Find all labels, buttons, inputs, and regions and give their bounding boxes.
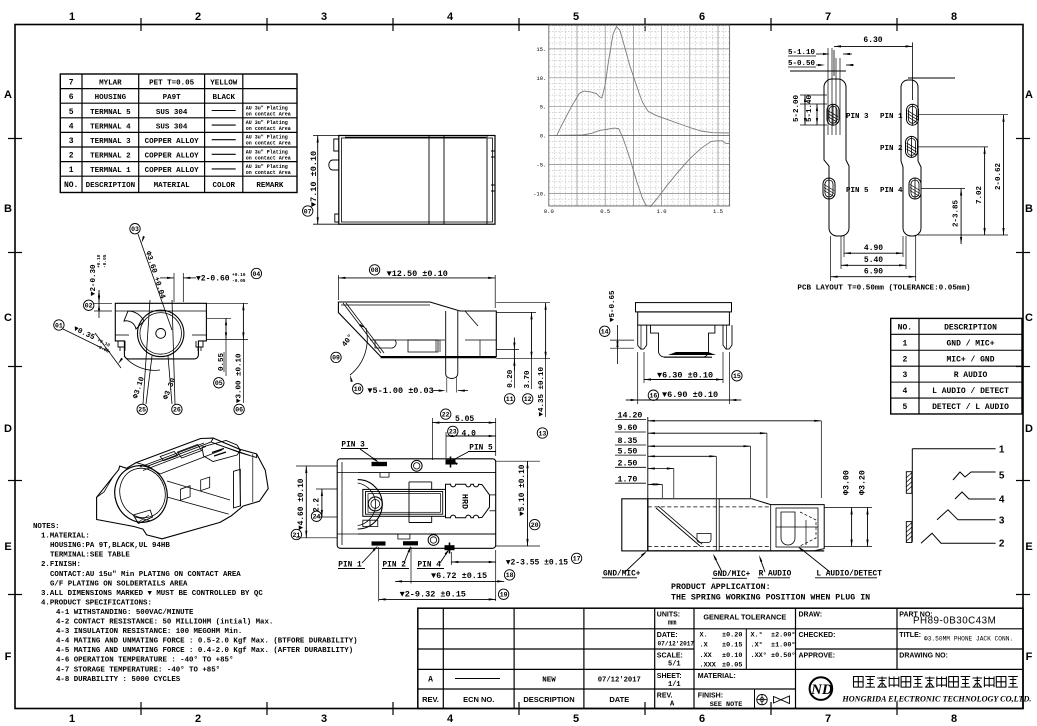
svg-text:UNITS:: UNITS: xyxy=(657,612,680,619)
svg-text:on contact Area: on contact Area xyxy=(246,155,291,161)
svg-text:02: 02 xyxy=(85,303,93,310)
svg-text:15.: 15. xyxy=(536,46,546,53)
svg-text:±0.05: ±0.05 xyxy=(722,662,742,670)
svg-text:7: 7 xyxy=(825,713,831,725)
svg-text:10.: 10. xyxy=(536,75,546,82)
svg-text:▼2-0.60: ▼2-0.60 xyxy=(196,275,230,284)
svg-text:2.2: 2.2 xyxy=(314,498,322,512)
svg-text:DRAW:: DRAW: xyxy=(799,612,823,619)
svg-text:5/1: 5/1 xyxy=(668,661,681,669)
svg-text:±2.00°: ±2.00° xyxy=(771,631,795,640)
svg-text:MATERIAL:: MATERIAL: xyxy=(698,673,736,680)
svg-text:GND/MIC+: GND/MIC+ xyxy=(713,571,751,579)
svg-text:3.70: 3.70 xyxy=(524,370,532,389)
svg-text:MIC+ / GND: MIC+ / GND xyxy=(946,355,994,364)
svg-text:5: 5 xyxy=(573,713,579,725)
svg-text:on contact Area: on contact Area xyxy=(246,170,291,176)
svg-text:F: F xyxy=(5,651,12,663)
svg-text:REV.: REV. xyxy=(422,695,439,704)
svg-text:07/12'2017: 07/12'2017 xyxy=(598,677,641,685)
svg-text:6: 6 xyxy=(699,713,705,725)
svg-text:TERMNAL 4: TERMNAL 4 xyxy=(90,123,131,131)
svg-text:DETECT / L AUDIO: DETECT / L AUDIO xyxy=(932,403,1009,412)
svg-text:▼5-0.65: ▼5-0.65 xyxy=(609,290,617,322)
svg-text:4: 4 xyxy=(902,387,907,396)
svg-text:on contact Area: on contact Area xyxy=(246,112,291,118)
svg-text:7: 7 xyxy=(825,11,831,23)
svg-text:1.0: 1.0 xyxy=(657,208,667,215)
svg-text:SUS 304: SUS 304 xyxy=(156,123,188,131)
svg-text:2: 2 xyxy=(902,355,907,364)
svg-text:4.0: 4.0 xyxy=(462,430,477,439)
svg-text:12: 12 xyxy=(524,396,532,403)
svg-text:3: 3 xyxy=(902,371,907,380)
svg-text:C: C xyxy=(4,312,12,324)
svg-text:SHEET:: SHEET: xyxy=(657,673,682,680)
svg-text:NO.: NO. xyxy=(64,181,78,190)
svg-text:14: 14 xyxy=(601,329,609,336)
svg-text:1: 1 xyxy=(902,339,907,348)
svg-text:DATE: DATE xyxy=(609,695,629,704)
svg-text:04: 04 xyxy=(252,271,260,278)
svg-text:7.02: 7.02 xyxy=(976,185,984,204)
svg-text:HONGRIDA ELECTRONIC TECHNOLOGY: HONGRIDA ELECTRONIC TECHNOLOGY CO,LTD. xyxy=(841,695,1031,704)
svg-text:BLACK: BLACK xyxy=(212,94,235,102)
svg-text:E: E xyxy=(1025,541,1032,553)
svg-text:0.20: 0.20 xyxy=(507,369,515,388)
svg-text:▼3.00 ±0.10: ▼3.00 ±0.10 xyxy=(235,353,243,403)
svg-text:PRODUCT APPLICATION:: PRODUCT APPLICATION: xyxy=(671,583,771,592)
svg-text:TERMNAL 2: TERMNAL 2 xyxy=(90,153,131,161)
svg-text:ECN NO.: ECN NO. xyxy=(463,695,494,704)
svg-text:YELLOW: YELLOW xyxy=(210,80,238,88)
svg-text:▼5.10 ±0.10: ▼5.10 ±0.10 xyxy=(519,464,527,516)
svg-text:▼7.10 ±0.10: ▼7.10 ±0.10 xyxy=(309,151,319,207)
svg-text:03: 03 xyxy=(131,226,139,233)
svg-text:SCALE:: SCALE: xyxy=(657,653,683,660)
svg-text:4-1 WITHSTANDING: 500VAC/MINUT: 4-1 WITHSTANDING: 500VAC/MINUTE xyxy=(56,609,194,617)
svg-text:±0.50°: ±0.50° xyxy=(771,651,795,660)
svg-text:10: 10 xyxy=(354,386,362,393)
svg-text:2: 2 xyxy=(69,152,74,161)
svg-text:on contact Area: on contact Area xyxy=(246,126,291,132)
svg-text:3: 3 xyxy=(321,11,327,23)
svg-text:APPROVE:: APPROVE: xyxy=(799,653,836,660)
svg-text:7: 7 xyxy=(69,79,74,88)
svg-text:.XX°: .XX° xyxy=(751,651,767,660)
svg-text:4-5 MATING AND UNMATING FORCE: 4-5 MATING AND UNMATING FORCE : 0.4-2.0 … xyxy=(56,647,353,655)
svg-text:2-0.62: 2-0.62 xyxy=(995,162,1003,190)
svg-text:L AUDIO/DETECT: L AUDIO/DETECT xyxy=(816,571,882,579)
svg-text:4: 4 xyxy=(447,713,454,725)
svg-text:4: 4 xyxy=(69,122,74,131)
svg-text:2: 2 xyxy=(999,539,1005,550)
svg-text:REMARK: REMARK xyxy=(256,182,284,190)
svg-text:1/1: 1/1 xyxy=(668,681,681,689)
svg-text:17: 17 xyxy=(573,556,581,563)
svg-text:23: 23 xyxy=(449,429,457,436)
svg-text:1.5: 1.5 xyxy=(713,208,723,215)
svg-text:▼4.60 ±0.10: ▼4.60 ±0.10 xyxy=(298,478,306,530)
svg-text:A: A xyxy=(4,89,12,101)
svg-text:0.55: 0.55 xyxy=(218,352,226,371)
svg-text:4-4 MATING AND UNMATING FORCE: 4-4 MATING AND UNMATING FORCE : 0.5-2.0 … xyxy=(56,638,358,646)
svg-text:-0.05: -0.05 xyxy=(232,278,246,284)
svg-text:5: 5 xyxy=(69,108,74,117)
svg-text:mm: mm xyxy=(668,620,676,628)
svg-text:4.90: 4.90 xyxy=(864,244,883,253)
svg-text:4-8 DURABILITY : 5000 CYCLES: 4-8 DURABILITY : 5000 CYCLES xyxy=(56,676,181,684)
svg-text:5.40: 5.40 xyxy=(864,256,883,265)
svg-text:▼2-3.55 ±0.15: ▼2-3.55 ±0.15 xyxy=(506,559,569,568)
svg-text:SUS 304: SUS 304 xyxy=(156,109,188,117)
svg-text:X.: X. xyxy=(700,632,708,640)
svg-text:▼2-9.32 ±0.15: ▼2-9.32 ±0.15 xyxy=(400,590,466,600)
svg-text:16: 16 xyxy=(649,393,657,400)
svg-text:G/F PLATING ON SOLDERTAILS ARE: G/F PLATING ON SOLDERTAILS AREA xyxy=(50,580,188,588)
svg-text:DESCRIPTION: DESCRIPTION xyxy=(523,695,574,704)
svg-text:COPPER ALLOY: COPPER ALLOY xyxy=(145,138,200,146)
svg-text:HOUSING: HOUSING xyxy=(95,94,127,102)
svg-text:4.PRODUCT SPECIFICATIONS:: 4.PRODUCT SPECIFICATIONS: xyxy=(41,599,152,607)
svg-text:1: 1 xyxy=(69,11,75,23)
svg-text:.XX: .XX xyxy=(700,652,713,660)
svg-text:+0.10: +0.10 xyxy=(232,272,246,278)
svg-text:3: 3 xyxy=(321,713,327,725)
svg-text:R AUDIO: R AUDIO xyxy=(954,371,988,380)
svg-text:.X: .X xyxy=(700,642,709,650)
svg-text:5.: 5. xyxy=(540,104,547,111)
svg-text:PA9T: PA9T xyxy=(163,94,182,102)
svg-text:0.: 0. xyxy=(540,133,547,140)
svg-text:COPPER ALLOY: COPPER ALLOY xyxy=(145,153,200,161)
svg-text:▼12.50 ±0.10: ▼12.50 ±0.10 xyxy=(387,269,448,279)
svg-text:Φ3.20: Φ3.20 xyxy=(859,470,868,495)
svg-text:GND / MIC+: GND / MIC+ xyxy=(946,339,994,348)
svg-text:6.90: 6.90 xyxy=(864,268,883,277)
svg-text:HRD: HRD xyxy=(460,494,470,509)
svg-text:GENERAL TOLERANCE: GENERAL TOLERANCE xyxy=(703,613,786,622)
svg-text:4: 4 xyxy=(999,495,1005,506)
svg-text:3.ALL DIMENSIONS MARKED ▼ MUST: 3.ALL DIMENSIONS MARKED ▼ MUST BE CONTRO… xyxy=(41,590,263,598)
svg-text:PET T=0.05: PET T=0.05 xyxy=(149,80,195,88)
svg-text:NEW: NEW xyxy=(542,677,556,685)
svg-text:X.°: X.° xyxy=(751,631,763,640)
svg-text:2: 2 xyxy=(195,11,201,23)
svg-text:05: 05 xyxy=(215,380,223,387)
svg-text:▼6.30 ±0.10: ▼6.30 ±0.10 xyxy=(657,371,713,381)
svg-text:22: 22 xyxy=(442,411,450,418)
svg-text:0.0: 0.0 xyxy=(544,208,554,215)
svg-text:4-3 INSULATION RESISTANCE: 100: 4-3 INSULATION RESISTANCE: 100 MEGOHM Mi… xyxy=(56,628,242,636)
svg-text:3: 3 xyxy=(999,515,1005,526)
svg-text:3: 3 xyxy=(69,137,74,146)
svg-text:4-7 STORAGE TEMPERATURE: -40°: 4-7 STORAGE TEMPERATURE: -40° TO +85° xyxy=(56,665,220,674)
svg-text:▼6.72 ±0.15: ▼6.72 ±0.15 xyxy=(431,571,487,581)
svg-text:TERMNAL 3: TERMNAL 3 xyxy=(90,138,131,146)
svg-text:PIN 2: PIN 2 xyxy=(880,145,903,153)
svg-text:1: 1 xyxy=(69,713,75,725)
svg-text:07: 07 xyxy=(304,208,312,215)
svg-text:01: 01 xyxy=(55,322,63,329)
svg-text:25: 25 xyxy=(138,407,146,414)
svg-text:E: E xyxy=(4,541,11,553)
svg-text:REV.: REV. xyxy=(657,693,673,700)
svg-text:CHECKED:: CHECKED: xyxy=(799,632,836,639)
svg-text:GND/MIC+: GND/MIC+ xyxy=(603,571,641,579)
svg-text:R AUDIO: R AUDIO xyxy=(759,571,792,579)
svg-text:TITLE:: TITLE: xyxy=(899,632,921,639)
svg-text:F: F xyxy=(1026,651,1033,663)
svg-text:11: 11 xyxy=(506,396,514,403)
svg-text:A: A xyxy=(428,676,433,685)
svg-text:2-3.85: 2-3.85 xyxy=(953,199,961,227)
svg-text:±0.20: ±0.20 xyxy=(722,632,742,640)
svg-text:D: D xyxy=(1025,423,1033,435)
svg-text:4: 4 xyxy=(447,11,454,23)
svg-text:.X°: .X° xyxy=(751,641,763,650)
svg-text:5: 5 xyxy=(902,403,907,412)
svg-text:1: 1 xyxy=(69,166,74,175)
svg-text:06: 06 xyxy=(235,407,243,414)
svg-text:FINISH:: FINISH: xyxy=(698,693,723,700)
svg-text:±0.10: ±0.10 xyxy=(722,652,742,660)
svg-text:DESCRIPTION: DESCRIPTION xyxy=(944,323,997,332)
svg-text:DRAWING NO:: DRAWING NO: xyxy=(899,653,948,660)
svg-text:6: 6 xyxy=(699,11,705,23)
svg-text:A: A xyxy=(1025,89,1033,101)
svg-text:Φ3.00: Φ3.00 xyxy=(843,470,852,495)
svg-text:SEE NOTE: SEE NOTE xyxy=(710,701,743,709)
svg-text:4-6 OPERATION TEMPERATURE : -4: 4-6 OPERATION TEMPERATURE : -40° TO +85° xyxy=(56,656,233,665)
svg-text:C: C xyxy=(1025,312,1033,324)
svg-text:2.FINISH:: 2.FINISH: xyxy=(41,561,81,569)
svg-text:6: 6 xyxy=(69,93,74,102)
svg-text:-0.05: -0.05 xyxy=(102,254,108,268)
svg-text:CONTACT:AU 15u″ Min PLATING ON: CONTACT:AU 15u″ Min PLATING ON CONTACT A… xyxy=(50,571,241,579)
svg-text:Φ3.50MM PHONE JACK CONN.: Φ3.50MM PHONE JACK CONN. xyxy=(924,636,1013,643)
svg-text:▼5-1.00 ±0.03: ▼5-1.00 ±0.03 xyxy=(367,386,433,396)
svg-text:COPPER ALLOY: COPPER ALLOY xyxy=(145,167,200,175)
svg-text:5-1.40: 5-1.40 xyxy=(806,94,814,122)
svg-text:DATE:: DATE: xyxy=(657,632,678,639)
svg-text:PCB LAYOUT T=0.50mm (TOLERANCE: PCB LAYOUT T=0.50mm (TOLERANCE:0.05mm) xyxy=(797,285,970,293)
svg-text:08: 08 xyxy=(371,267,379,274)
svg-text:+0.10: +0.10 xyxy=(96,254,102,268)
svg-text:ND: ND xyxy=(810,682,833,698)
svg-text:24: 24 xyxy=(313,514,321,521)
svg-text:PIN 1: PIN 1 xyxy=(880,113,903,121)
svg-text:PIN 4: PIN 4 xyxy=(880,187,903,195)
svg-text:▼4.35 ±0.10: ▼4.35 ±0.10 xyxy=(538,366,546,416)
svg-text:07/12'2017: 07/12'2017 xyxy=(658,641,695,648)
svg-text:D: D xyxy=(4,423,12,435)
svg-text:HOUSING:PA 9T,BLACK,UL 94HB: HOUSING:PA 9T,BLACK,UL 94HB xyxy=(50,542,170,550)
svg-text:5.05: 5.05 xyxy=(455,415,474,424)
svg-text:PIN 3: PIN 3 xyxy=(846,113,869,121)
svg-text:TERMINAL:SEE TABLE: TERMINAL:SEE TABLE xyxy=(50,552,130,560)
svg-text:2: 2 xyxy=(195,713,201,725)
svg-text:▼6.90 ±0.10: ▼6.90 ±0.10 xyxy=(662,390,718,400)
svg-text:1: 1 xyxy=(999,445,1005,456)
svg-text:NO.: NO. xyxy=(898,323,912,332)
svg-text:B: B xyxy=(1025,203,1033,215)
svg-text:TERMNAL 5: TERMNAL 5 xyxy=(90,109,131,117)
svg-text:19: 19 xyxy=(500,592,508,599)
svg-text:±0.15: ±0.15 xyxy=(722,642,742,650)
svg-text:on contact Area: on contact Area xyxy=(246,141,291,147)
svg-text:15: 15 xyxy=(733,373,741,380)
svg-text:-10.: -10. xyxy=(533,190,546,197)
svg-text:5-2.00: 5-2.00 xyxy=(793,94,801,122)
svg-text:PIN 5: PIN 5 xyxy=(846,187,869,195)
svg-text:0.5: 0.5 xyxy=(600,208,610,215)
svg-text:5: 5 xyxy=(573,11,579,23)
svg-text:B: B xyxy=(4,203,12,215)
svg-text:L AUDIO / DETECT: L AUDIO / DETECT xyxy=(932,387,1009,396)
svg-text:4-2 CONTACT RESISTANCE: 50 MIL: 4-2 CONTACT RESISTANCE: 50 MILLIOHM (int… xyxy=(56,619,273,627)
svg-text:6.30: 6.30 xyxy=(863,36,882,45)
svg-text:20: 20 xyxy=(531,522,539,529)
svg-text:DESCRIPTION: DESCRIPTION xyxy=(86,182,136,190)
svg-text:13: 13 xyxy=(538,430,546,437)
svg-text:±1.00°: ±1.00° xyxy=(771,641,795,650)
svg-text:21: 21 xyxy=(292,532,300,539)
svg-text:COLOR: COLOR xyxy=(212,182,235,190)
svg-text:8: 8 xyxy=(951,713,957,725)
svg-text:PH89-0B30C43M: PH89-0B30C43M xyxy=(913,616,996,627)
svg-text:.XXX: .XXX xyxy=(700,662,717,670)
svg-text:26: 26 xyxy=(173,407,181,414)
svg-text:5: 5 xyxy=(999,471,1005,482)
svg-text:18: 18 xyxy=(506,572,514,579)
svg-text:MYLAR: MYLAR xyxy=(99,80,122,88)
svg-text:8: 8 xyxy=(951,11,957,23)
svg-text:-5.: -5. xyxy=(536,162,546,169)
svg-text:1.MATERIAL:: 1.MATERIAL: xyxy=(41,533,90,541)
svg-text:MATERIAL: MATERIAL xyxy=(154,182,191,190)
svg-text:TERMNAL 1: TERMNAL 1 xyxy=(90,167,131,175)
svg-text:09: 09 xyxy=(332,355,340,362)
svg-text:NOTES:: NOTES: xyxy=(33,523,60,531)
svg-text:THE SPRING WORKING POSITION WH: THE SPRING WORKING POSITION WHEN PLUG IN xyxy=(671,594,870,603)
